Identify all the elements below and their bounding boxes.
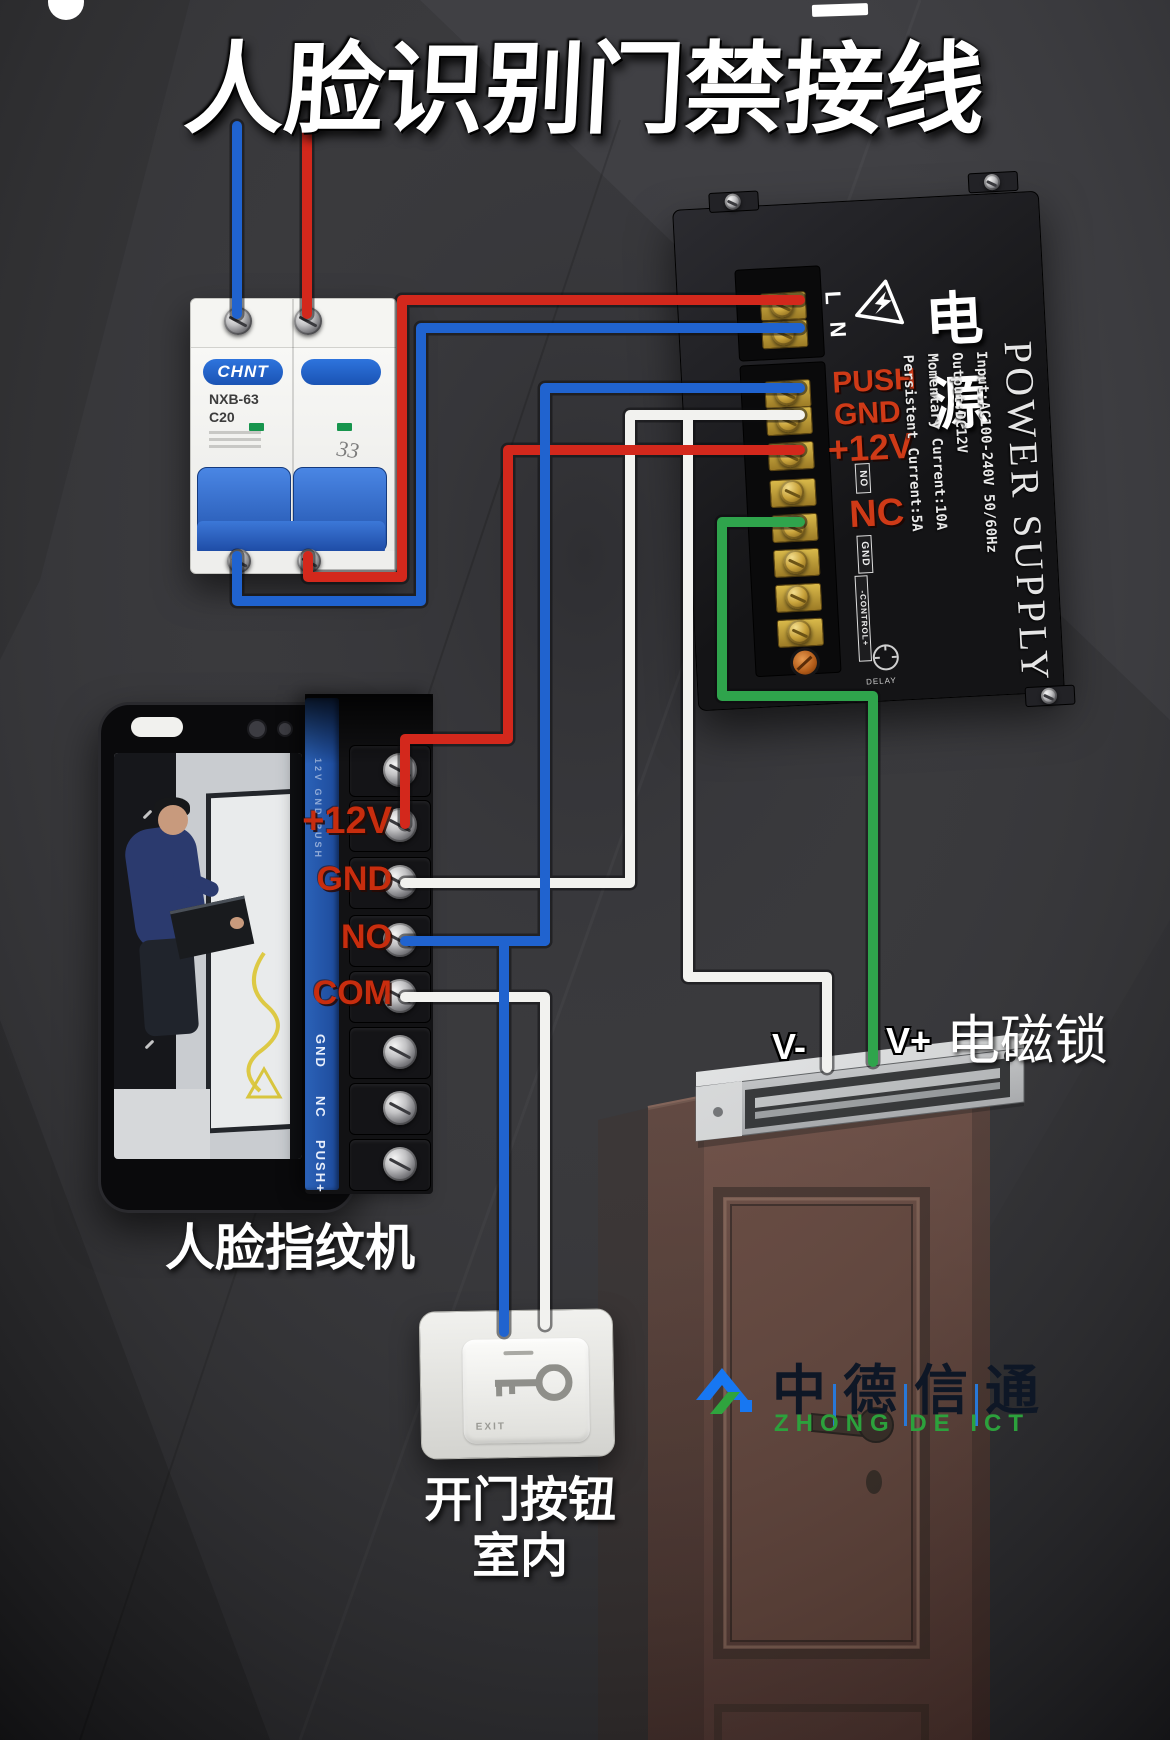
maglock-vplus-label: V+ bbox=[886, 1020, 931, 1062]
exit-button-caption-line2: 室内 bbox=[400, 1516, 640, 1586]
poster-title: 人脸识别门禁接线 bbox=[56, 8, 1114, 153]
logo-en-text: ZHONG DE ICT bbox=[774, 1410, 1030, 1438]
wire-red-12v-to-device bbox=[405, 450, 800, 824]
face-device-caption: 人脸指纹机 bbox=[150, 1208, 430, 1280]
logo-mark-icon bbox=[688, 1348, 764, 1428]
maglock-caption: 电磁锁 bbox=[946, 996, 1108, 1075]
maglock-vminus-label: V- bbox=[772, 1026, 806, 1068]
brand-logo: 中德信通 ZHONG DE ICT bbox=[688, 1346, 1028, 1456]
poster-stage: CHNT NXB-63 C20 33 bbox=[0, 0, 1170, 1740]
wire-shadows bbox=[237, 126, 873, 1332]
